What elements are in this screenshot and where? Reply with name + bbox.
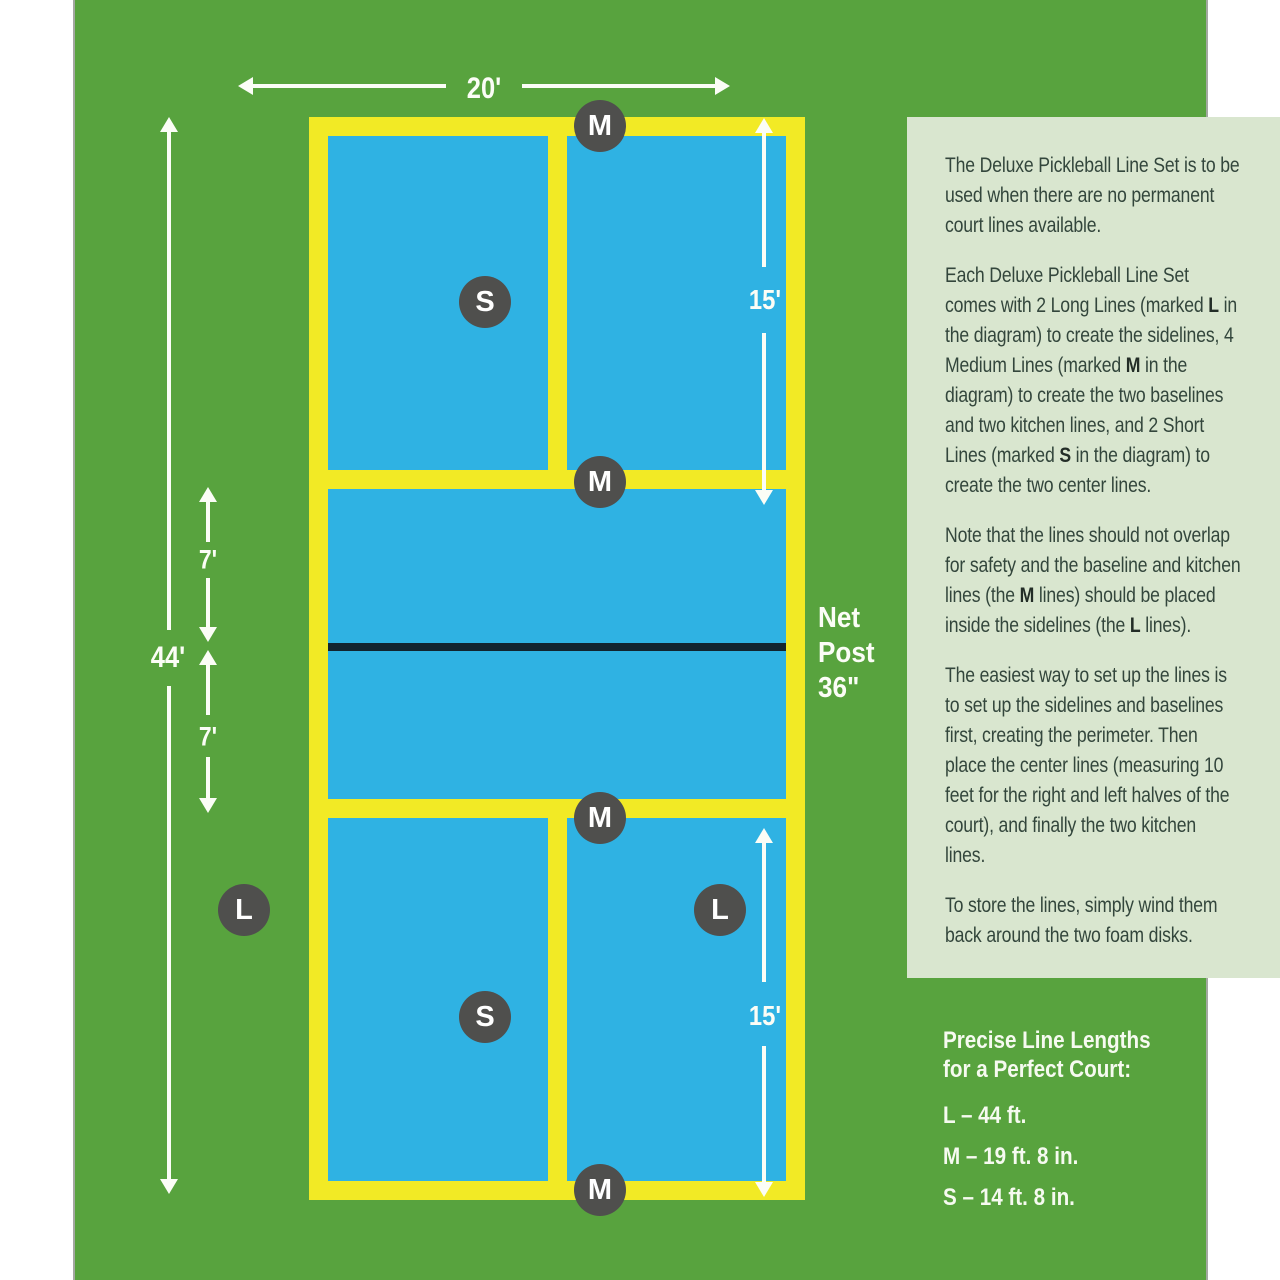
court-width-label: 20' — [467, 72, 501, 106]
line-length-item-short: S – 14 ft. 8 in. — [943, 1186, 1253, 1210]
kitchen-bottom-arrow-line-down — [206, 757, 210, 799]
net-post-label-line1: Net — [818, 601, 875, 636]
court-length-label: 44' — [151, 641, 185, 675]
instructions-paragraph-2: Each Deluxe Pickleball Line Set comes wi… — [945, 261, 1241, 501]
width-arrow-line-right — [522, 84, 718, 88]
kitchen-depth-bottom-label: 7' — [199, 722, 217, 753]
service-top-arrow-line-down — [762, 333, 766, 491]
instructions-text: The Deluxe Pickleball Line Set is to be … — [945, 151, 1241, 971]
marker-l-right-sideline: L — [694, 884, 746, 936]
kitchen-top-arrow-line-up — [206, 500, 210, 542]
net-post-label-line3: 36" — [818, 671, 875, 706]
page-background: M S M M L L S M 20' 44' 7' 7' 15 — [0, 0, 1280, 1280]
kitchen-line-bottom — [328, 799, 786, 818]
length-arrow-head-bottom — [160, 1179, 178, 1194]
width-arrow-line-left — [248, 84, 446, 88]
marker-s-bottom-center-line: S — [459, 991, 511, 1043]
instructions-panel: The Deluxe Pickleball Line Set is to be … — [907, 117, 1280, 978]
service-bottom-arrow-line-down — [762, 1046, 766, 1183]
court-boundary-lines — [309, 117, 805, 1200]
instructions-paragraph-5: To store the lines, simply wind them bac… — [945, 891, 1241, 951]
net-line — [328, 643, 786, 651]
kitchen-bottom-arrow-line-up — [206, 663, 210, 715]
kitchen-top-arrow-line-down — [206, 578, 210, 628]
service-bottom-arrow-line-up — [762, 841, 766, 982]
service-top-arrow-head-down — [755, 490, 773, 505]
marker-l-left-sideline: L — [218, 884, 270, 936]
poster: M S M M L L S M 20' 44' 7' 7' 15 — [73, 0, 1208, 1280]
service-top-arrow-line-up — [762, 131, 766, 267]
width-arrow-head-right — [715, 77, 730, 95]
instructions-paragraph-1: The Deluxe Pickleball Line Set is to be … — [945, 151, 1241, 241]
service-depth-bottom-label: 15' — [749, 1000, 781, 1032]
line-lengths-heading-line2: for a Perfect Court: — [943, 1055, 1253, 1084]
instructions-paragraph-4: The easiest way to set up the lines is t… — [945, 661, 1241, 871]
line-lengths-section: Precise Line Lengths for a Perfect Court… — [943, 1026, 1253, 1210]
length-arrow-line-bottom — [167, 686, 171, 1180]
service-bottom-arrow-head-down — [755, 1182, 773, 1197]
service-depth-top-label: 15' — [749, 284, 781, 316]
instructions-paragraph-3: Note that the lines should not overlap f… — [945, 521, 1241, 641]
length-arrow-line-top — [167, 130, 171, 630]
line-length-item-medium: M – 19 ft. 8 in. — [943, 1145, 1253, 1169]
net-post-label: Net Post 36" — [818, 601, 875, 706]
line-length-item-long: L – 44 ft. — [943, 1104, 1253, 1128]
marker-m-bottom-kitchen-line: M — [574, 792, 626, 844]
marker-m-bottom-baseline: M — [574, 1164, 626, 1216]
kitchen-depth-top-label: 7' — [199, 545, 217, 576]
kitchen-line-top — [328, 470, 786, 489]
kitchen-bottom-arrow-head-down — [199, 798, 217, 813]
center-line-bottom — [548, 818, 567, 1181]
marker-m-top-kitchen-line: M — [574, 456, 626, 508]
marker-m-top-baseline: M — [574, 100, 626, 152]
center-line-top — [548, 136, 567, 470]
kitchen-top-arrow-head-down — [199, 627, 217, 642]
marker-s-top-center-line: S — [459, 276, 511, 328]
net-post-label-line2: Post — [818, 636, 875, 671]
line-lengths-heading-line1: Precise Line Lengths — [943, 1026, 1253, 1055]
